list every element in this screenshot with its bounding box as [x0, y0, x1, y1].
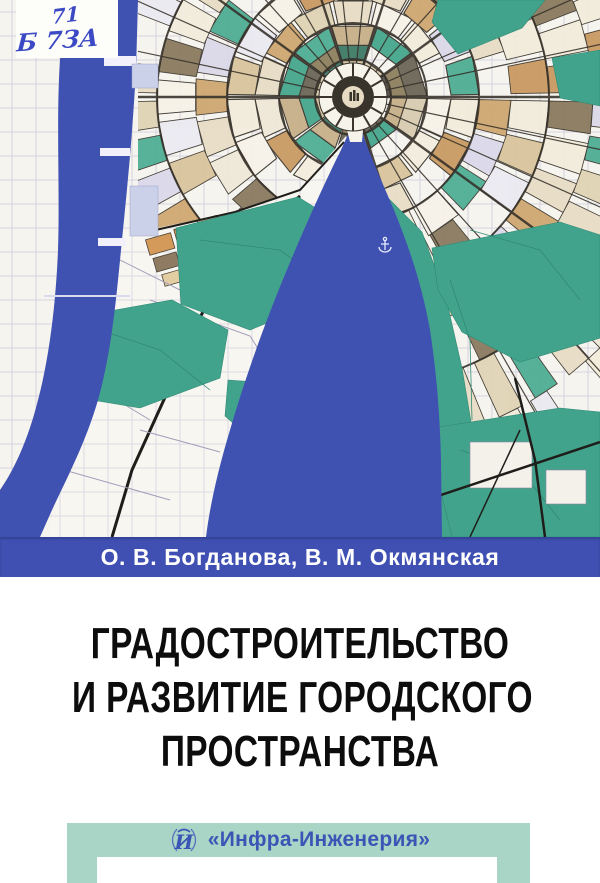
authors-text: О. В. Богданова, В. М. Окмянская — [101, 544, 500, 571]
pier — [98, 238, 126, 246]
publisher-name: «Инфра-Инженерия» — [208, 828, 431, 852]
library-call-number-label: 71 Б 7ЗА — [15, 0, 118, 58]
port-block — [132, 64, 158, 88]
authors-band: О. В. Богданова, В. М. Окмянская — [0, 537, 600, 577]
city-block — [333, 1, 373, 25]
publisher-logo-letter: И — [173, 830, 194, 854]
city-plan-map: 71 Б 7ЗА — [0, 0, 600, 537]
publisher-frame: И «Инфра-Инженерия» — [67, 823, 530, 883]
title-line-3: ПРОСТРАНСТВА — [72, 725, 528, 779]
book-title: ГРАДОСТРОИТЕЛЬСТВО И РАЗВИТИЕ ГОРОДСКОГО… — [0, 617, 600, 779]
publisher-logo-icon: И — [167, 825, 201, 855]
city-block — [332, 26, 375, 45]
book-cover: 71 Б 7ЗА О. В. Богданова, В. М. Окмянска… — [0, 0, 600, 883]
call-number-line2: Б 7ЗА — [15, 23, 100, 58]
port-block — [130, 186, 158, 236]
publisher-frame-inner — [97, 857, 497, 883]
city-plan-map-wrap: 71 Б 7ЗА — [0, 0, 600, 537]
pier — [100, 148, 130, 156]
publisher-row: И «Инфра-Инженерия» — [67, 823, 530, 857]
title-line-2: И РАЗВИТИЕ ГОРОДСКОГО — [72, 671, 528, 725]
title-line-1: ГРАДОСТРОИТЕЛЬСТВО — [72, 617, 528, 671]
